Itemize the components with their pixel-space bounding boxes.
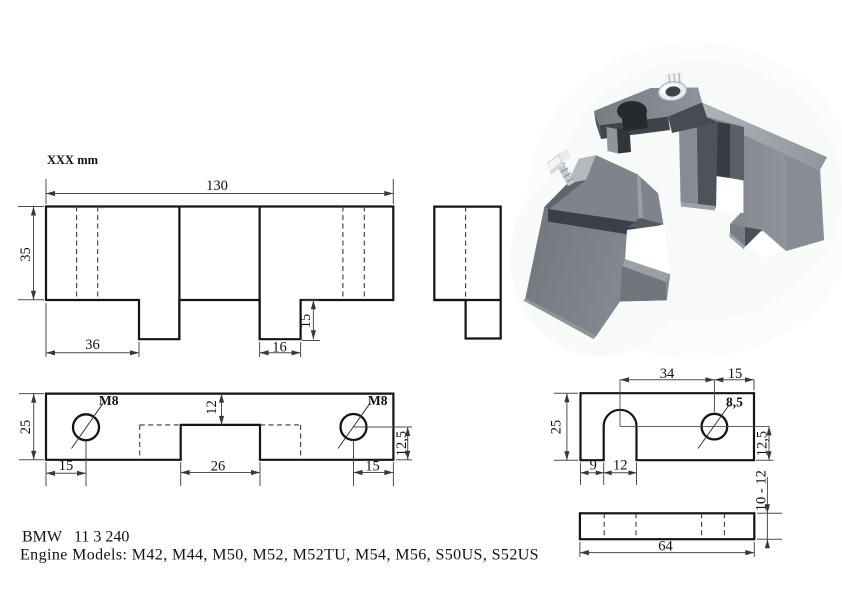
svg-text:26: 26 [211, 459, 226, 475]
svg-text:15: 15 [298, 314, 314, 329]
svg-text:M8: M8 [368, 393, 388, 408]
svg-text:12,5: 12,5 [394, 431, 410, 456]
svg-text:10 - 12: 10 - 12 [754, 470, 770, 511]
svg-text:XXX mm: XXX mm [47, 153, 99, 167]
svg-text:25: 25 [18, 420, 34, 435]
svg-text:15: 15 [59, 458, 74, 474]
svg-text:130: 130 [206, 178, 228, 194]
svg-text:16: 16 [272, 340, 287, 356]
svg-text:9: 9 [590, 458, 597, 474]
svg-text:35: 35 [18, 247, 34, 262]
svg-text:15: 15 [365, 459, 380, 475]
svg-text:34: 34 [660, 366, 675, 382]
svg-text:12: 12 [204, 400, 220, 415]
svg-text:BMW 11 3 240: BMW 11 3 240 [22, 529, 129, 546]
svg-text:Engine Models: M42, M44, M50,: Engine Models: M42, M44, M50, M52, M52TU… [20, 547, 539, 564]
svg-text:64: 64 [658, 539, 673, 555]
svg-text:15: 15 [728, 366, 743, 382]
svg-text:8,5: 8,5 [726, 395, 743, 410]
svg-text:25: 25 [549, 420, 565, 435]
svg-text:12,5: 12,5 [755, 431, 771, 456]
svg-text:36: 36 [85, 337, 100, 353]
svg-text:M8: M8 [99, 393, 119, 408]
svg-text:12: 12 [613, 458, 628, 474]
